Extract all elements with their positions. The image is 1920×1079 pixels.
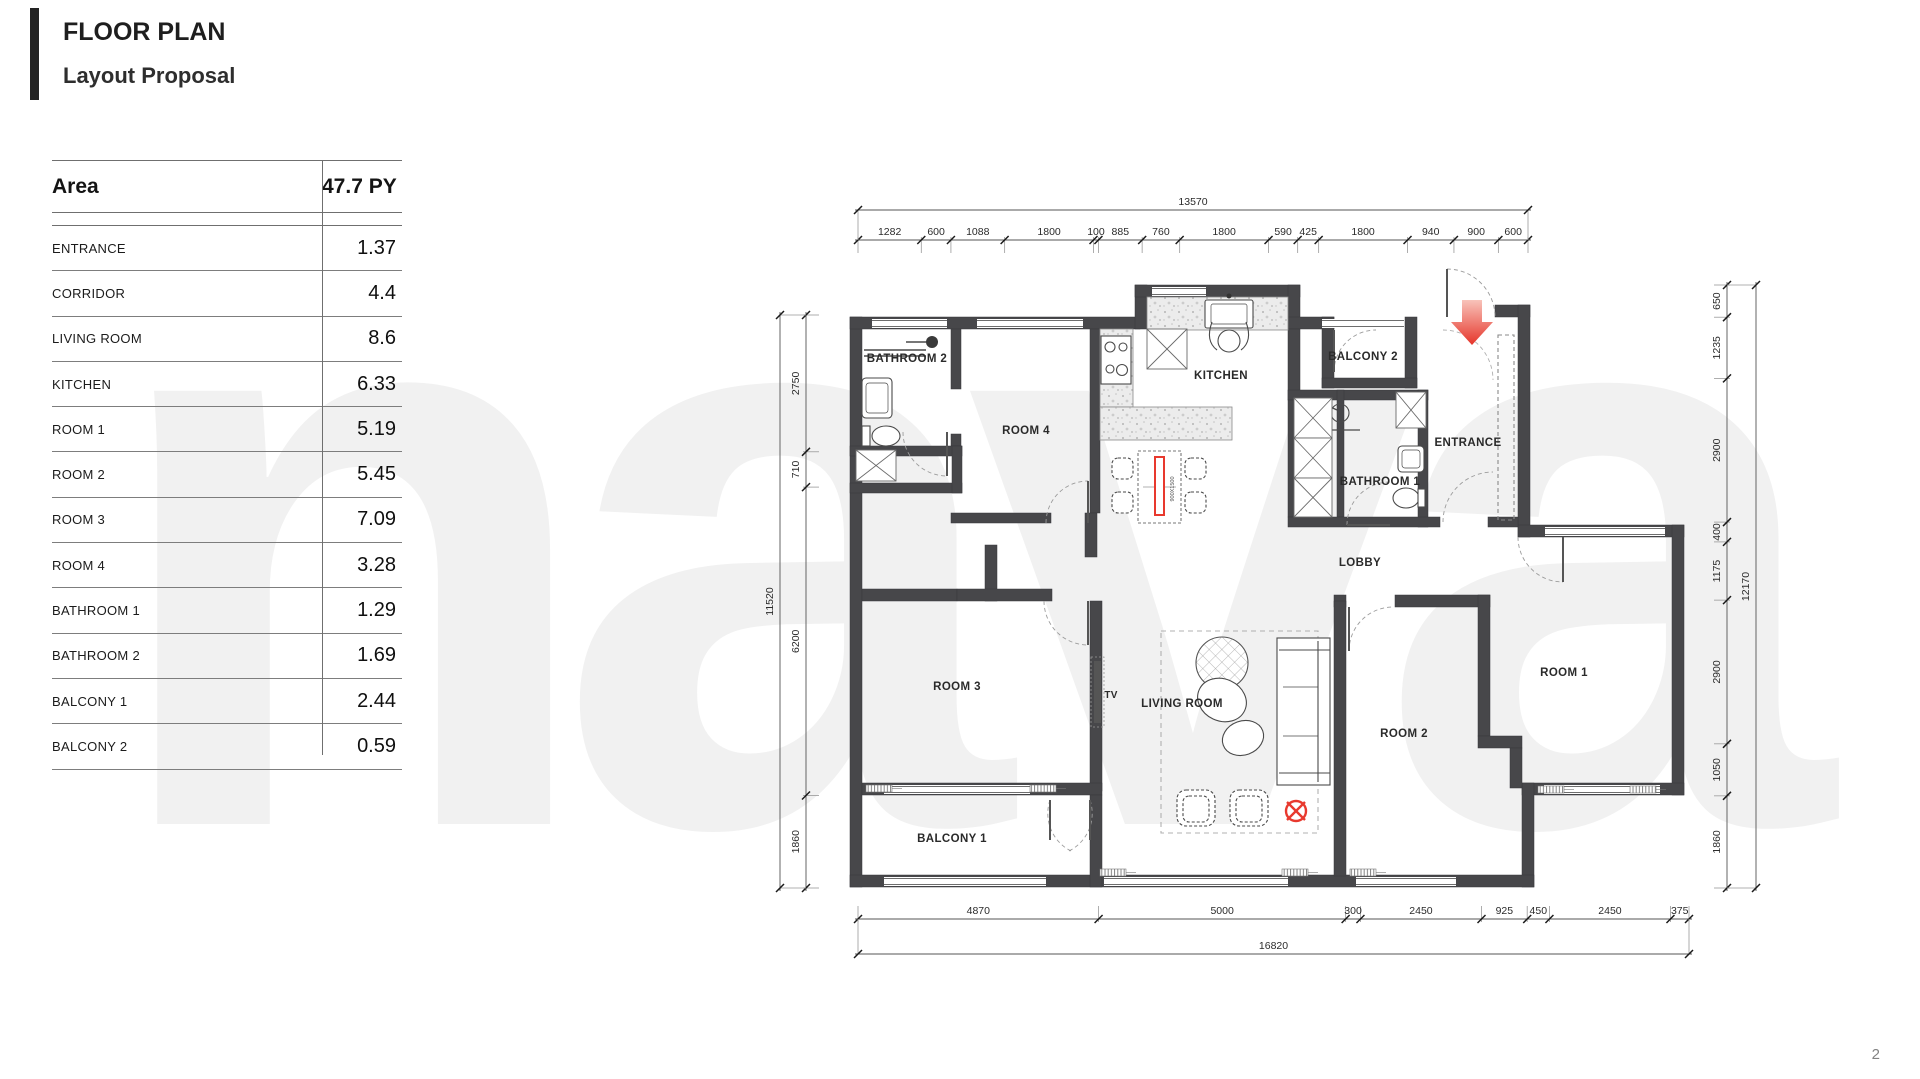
dimension-label: 12170: [1740, 572, 1752, 601]
dimension-label: 1860: [790, 830, 802, 854]
dimension-label: 5000: [1210, 905, 1234, 917]
dimension-label: 100: [1087, 226, 1105, 238]
room-name-cell: KITCHEN: [52, 377, 322, 392]
room-name-cell: BATHROOM 1: [52, 603, 322, 618]
table-row: BATHROOM 21.69: [52, 634, 402, 679]
dimension-label: 4870: [967, 905, 991, 917]
doors-group: [903, 269, 1563, 851]
compass-icon: [1286, 801, 1306, 821]
dimension-label: 600: [1504, 226, 1522, 238]
room-label-room-2: ROOM 2: [1380, 728, 1428, 740]
dimension-label: 885: [1112, 226, 1130, 238]
dimension-label: 2450: [1409, 905, 1433, 917]
room-name-cell: ROOM 2: [52, 467, 322, 482]
table-row: ROOM 43.28: [52, 543, 402, 588]
table-row: ROOM 37.09: [52, 498, 402, 543]
page-subtitle: Layout Proposal: [63, 63, 235, 89]
table-row: LIVING ROOM8.6: [52, 317, 402, 362]
dimension-label: 760: [1152, 226, 1170, 238]
dining-bench: [1155, 457, 1164, 515]
dimension-label: 2900: [1711, 438, 1723, 462]
toilet-icon: [1393, 488, 1419, 508]
shoe-cabinet: [1498, 335, 1514, 520]
room-area-cell: 0.59: [322, 735, 402, 758]
dimension-label: 900: [1467, 226, 1485, 238]
dimension-label: 1050: [1711, 758, 1723, 782]
table-row: KITCHEN6.33: [52, 362, 402, 407]
table-column-divider: [322, 160, 323, 755]
sofa: [1277, 638, 1330, 785]
room-label-tv: TV: [1104, 690, 1117, 701]
room-label-room-4: ROOM 4: [1002, 425, 1050, 437]
dimension-label: 300: [1344, 905, 1362, 917]
room-label-room-3: ROOM 3: [933, 681, 981, 693]
dimension-label: 2900: [1711, 660, 1723, 684]
stove-icon: [1101, 336, 1131, 384]
room-label-kitchen: KITCHEN: [1194, 370, 1248, 382]
dimension-label: 2450: [1598, 905, 1622, 917]
room-name-cell: ROOM 4: [52, 558, 322, 573]
dimension-label: 1088: [966, 226, 990, 238]
table-header-row: Area 47.7 PY: [52, 160, 402, 213]
dimension-label: 450: [1530, 905, 1548, 917]
room-name-cell: BALCONY 1: [52, 694, 322, 709]
header-accent-bar: [30, 8, 39, 100]
dimension-label: 425: [1299, 226, 1317, 238]
table-row: BALCONY 12.44: [52, 679, 402, 724]
furniture-note: 900X1500: [1170, 476, 1176, 501]
dimension-label: 600: [927, 226, 945, 238]
dimension-label: 710: [790, 461, 802, 479]
dimension-label: 1800: [1351, 226, 1375, 238]
room-name-cell: ENTRANCE: [52, 241, 322, 256]
room-area-cell: 1.69: [322, 644, 402, 667]
room-area-cell: 8.6: [322, 327, 402, 350]
room-area-cell: 4.4: [322, 282, 402, 305]
person-figure-icon: [1218, 330, 1240, 352]
room-area-cell: 2.44: [322, 690, 402, 713]
table-row: BATHROOM 11.29: [52, 588, 402, 633]
armchairs: [1177, 790, 1268, 826]
table-body: ENTRANCE1.37CORRIDOR4.4LIVING ROOM8.6KIT…: [52, 226, 402, 770]
dimension-label: 1800: [1037, 226, 1061, 238]
room-label-balcony-1: BALCONY 1: [917, 833, 987, 845]
room-name-cell: BALCONY 2: [52, 739, 322, 754]
entrance-arrow-icon: [1451, 300, 1493, 345]
table-row: CORRIDOR4.4: [52, 271, 402, 316]
living-room-furniture: [1091, 631, 1330, 833]
dimension-label: 2750: [790, 372, 802, 396]
dimension-label: 6200: [790, 629, 802, 653]
table-row: BALCONY 20.59: [52, 724, 402, 769]
dimension-label: 590: [1274, 226, 1292, 238]
dimension-label: 1175: [1711, 560, 1723, 583]
table-row: ENTRANCE1.37: [52, 226, 402, 271]
room-area-cell: 7.09: [322, 508, 402, 531]
table-row: ROOM 25.45: [52, 452, 402, 497]
page-number: 2: [1872, 1046, 1880, 1063]
dimension-label: 13570: [1178, 196, 1207, 208]
dimension-label: 16820: [1259, 940, 1288, 952]
room-label-balcony-2: BALCONY 2: [1328, 351, 1398, 363]
dimension-label: 1800: [1212, 226, 1236, 238]
room-name-cell: LIVING ROOM: [52, 331, 322, 346]
area-table: Area 47.7 PY ENTRANCE1.37CORRIDOR4.4LIVI…: [52, 160, 402, 770]
room-label-entrance: ENTRANCE: [1434, 437, 1501, 449]
page-title: FLOOR PLAN: [63, 18, 226, 47]
dimension-label: 11520: [764, 587, 776, 616]
room-area-cell: 3.28: [322, 554, 402, 577]
dimension-label: 1282: [878, 226, 902, 238]
room-area-cell: 1.37: [322, 237, 402, 260]
room-area-cell: 1.29: [322, 599, 402, 622]
toilet-icon: [872, 426, 900, 446]
room-label-living-room: LIVING ROOM: [1141, 698, 1223, 710]
room-label-lobby: LOBBY: [1339, 557, 1381, 569]
tv-unit: [1094, 661, 1101, 723]
room-label-bathroom-1: BATHROOM 1: [1340, 476, 1421, 488]
room-label-room-1: ROOM 1: [1540, 667, 1588, 679]
table-header-label: Area: [52, 175, 322, 199]
table-header-value: 47.7 PY: [322, 175, 402, 199]
dimension-label: 925: [1496, 905, 1514, 917]
room-name-cell: CORRIDOR: [52, 286, 322, 301]
table-header-spacer: [52, 213, 402, 226]
dimension-label: 940: [1422, 226, 1440, 238]
room-name-cell: ROOM 3: [52, 512, 322, 527]
room-area-cell: 6.33: [322, 373, 402, 396]
dimension-label: 375: [1671, 905, 1689, 917]
room-area-cell: 5.45: [322, 463, 402, 486]
dimension-label: 400: [1711, 523, 1723, 541]
room-name-cell: BATHROOM 2: [52, 648, 322, 663]
dimension-label: 1860: [1711, 830, 1723, 854]
dimension-label: 650: [1711, 292, 1723, 310]
room-area-cell: 5.19: [322, 418, 402, 441]
table-row: ROOM 15.19: [52, 407, 402, 452]
dimension-label: 1235: [1711, 336, 1723, 360]
room-name-cell: ROOM 1: [52, 422, 322, 437]
room-label-bathroom-2: BATHROOM 2: [867, 353, 947, 365]
